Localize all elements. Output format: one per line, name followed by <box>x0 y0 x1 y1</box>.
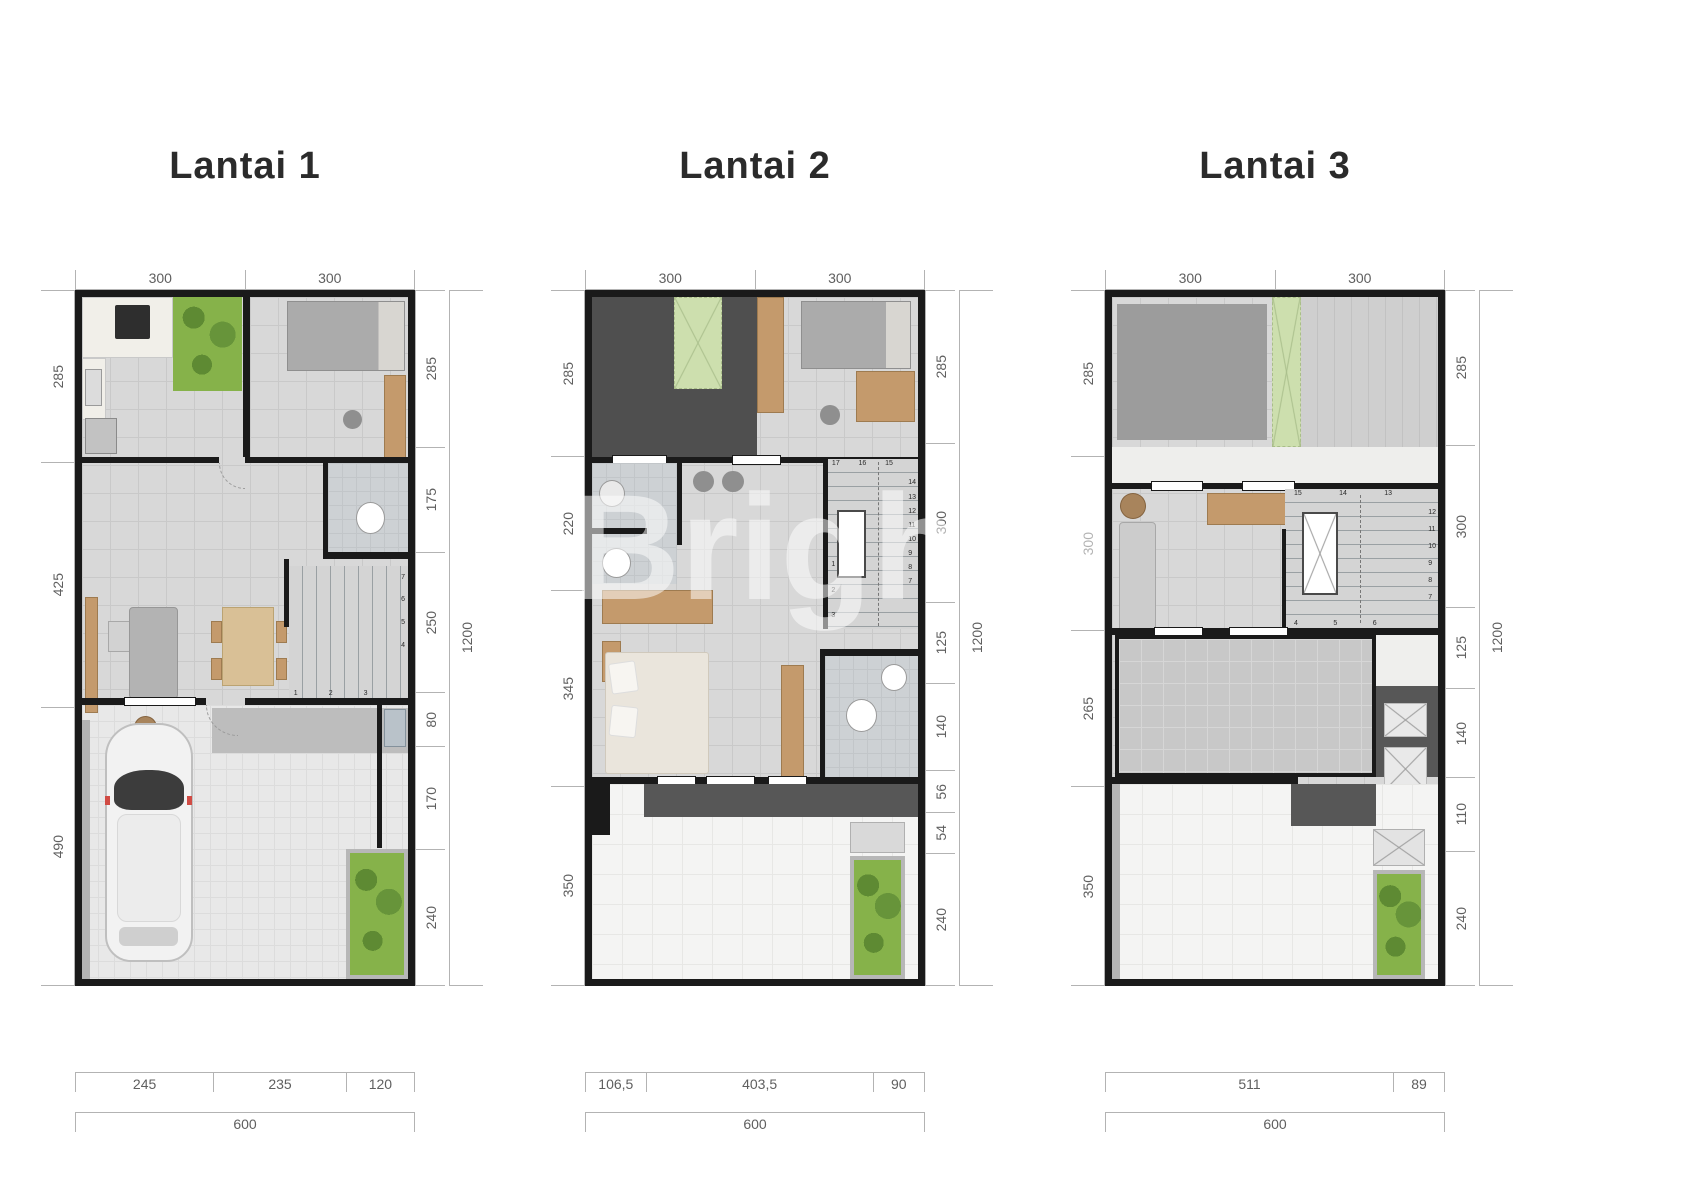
toilet-icon-bathroom2 <box>602 548 631 578</box>
pouf-bedroom2 <box>820 405 840 425</box>
dimension-label: 240 <box>933 908 949 931</box>
dimension-label: 89 <box>1394 1076 1444 1092</box>
stair-step-number: 11 <box>1428 526 1436 533</box>
desk-master-bedroom <box>602 590 713 624</box>
wall-utility-right <box>377 705 382 848</box>
stair-step-number: 4 <box>1294 620 1298 627</box>
stair-step-number: 7 <box>908 578 916 585</box>
garden-patch-back <box>346 849 408 979</box>
roof-slab <box>1117 304 1267 440</box>
stair-step-number: 1 <box>294 690 298 697</box>
dimension-label: 80 <box>423 712 439 728</box>
dining-chair <box>211 621 222 643</box>
stair-step-number: 14 <box>1339 490 1347 497</box>
wood-floor-strip <box>856 371 915 422</box>
stair-numbers: 7654 <box>401 574 405 649</box>
stair-step-number: 13 <box>908 494 916 501</box>
ac-pad <box>1384 703 1426 737</box>
dimension-label: 300 <box>1080 532 1096 555</box>
door-arc-kitchen <box>219 463 245 489</box>
dim-strip-top: 300300 <box>75 268 415 290</box>
stair-step-number: 3 <box>364 690 368 697</box>
stair-numbers: 123 <box>294 690 368 697</box>
car-marker-left <box>105 796 110 805</box>
ledge-strip <box>1112 447 1438 486</box>
stair-step-number: 3 <box>831 612 835 619</box>
stair-step-number: 1 <box>831 561 835 568</box>
dimension-label: 250 <box>423 611 439 634</box>
dimension-label: 1200 <box>459 622 475 653</box>
dimension-label: 300 <box>586 270 755 286</box>
stair-numbers: 151413 <box>1294 490 1392 497</box>
dining-table <box>222 607 274 685</box>
bathroom2-wall-inner <box>592 528 647 535</box>
stair-step-number: 5 <box>1333 620 1337 627</box>
dimension-label: 300 <box>76 270 245 286</box>
wardrobe-bedroom2 <box>757 297 785 413</box>
dimension-label: 170 <box>423 787 439 810</box>
dimension-label: 285 <box>933 355 949 378</box>
pillow <box>609 704 639 738</box>
dimension-label: 300 <box>756 270 925 286</box>
dimension-label: 300 <box>1276 270 1445 286</box>
stair-step-number: 7 <box>1428 594 1436 601</box>
tiled-roof <box>1301 297 1438 447</box>
dimension-label: 240 <box>1453 907 1469 930</box>
dimension-label: 54 <box>933 825 949 841</box>
stair-step-number: 12 <box>908 508 916 515</box>
dim-strip-bottom-total: 600 <box>1105 1112 1445 1136</box>
dim-strip-right-total: 1200 <box>449 290 483 986</box>
dimension-label: 125 <box>933 631 949 654</box>
dimension-label: 600 <box>586 1116 924 1132</box>
dim-strip-right: 2853001251405654240 <box>925 290 955 986</box>
terrace-deck <box>1115 635 1376 777</box>
stove-icon <box>115 305 151 339</box>
stair-step-number: 6 <box>1373 620 1377 627</box>
dimension-label: 285 <box>1453 356 1469 379</box>
round-table-family <box>1120 493 1146 519</box>
dimension-label: 140 <box>933 715 949 738</box>
stair-step-number: 15 <box>1294 490 1302 497</box>
rooftop-wall-stub <box>592 784 610 835</box>
dimension-label: 265 <box>1080 697 1096 720</box>
stair-step-number: 10 <box>908 536 916 543</box>
dim-strip-bottom-total: 600 <box>585 1112 925 1136</box>
coffee-table <box>108 621 131 652</box>
bed-master-bedroom <box>605 652 709 775</box>
garden-patch-rooftop <box>1373 870 1425 979</box>
bed-front-bedroom <box>287 301 404 371</box>
dim-strip-top: 300300 <box>1105 268 1445 290</box>
sink-icon-bathroom3 <box>881 664 907 691</box>
dimension-label: 300 <box>1453 515 1469 538</box>
dimension-label: 345 <box>560 677 576 700</box>
green-strip <box>1272 297 1301 447</box>
floor-title-lantai-3: Lantai 3 <box>1105 145 1445 188</box>
dimension-label: 1200 <box>969 622 985 653</box>
car-windshield <box>114 770 185 810</box>
stairs-floor3: 151413 121110987 456 <box>1285 489 1438 628</box>
window-hall <box>732 455 781 465</box>
wall-kitchen-bottom <box>82 457 219 464</box>
dim-strip-bottom: 51189 <box>1105 1072 1445 1096</box>
floor-title-lantai-1: Lantai 1 <box>75 145 415 188</box>
floor-title-lantai-2: Lantai 2 <box>585 145 925 188</box>
stair-step-number: 7 <box>401 574 405 581</box>
dimension-label: 235 <box>214 1076 346 1092</box>
stair-numbers: 121110987 <box>1428 509 1436 601</box>
pouf-hall <box>693 471 714 492</box>
stair-well <box>1302 512 1339 595</box>
floorplan-panel-lantai-1: Lantai 1 300300 285425490 28517525080170… <box>15 125 507 1155</box>
stair-numbers: 171615 <box>832 460 893 467</box>
wall-master-bottom <box>592 777 918 784</box>
stair-step-number: 9 <box>1428 560 1436 567</box>
dim-strip-bottom: 245235120 <box>75 1072 415 1096</box>
stair-step-number: 8 <box>1428 577 1436 584</box>
dimension-label: 285 <box>50 365 66 388</box>
wardrobe-front-bedroom <box>384 375 406 460</box>
dimension-label: 425 <box>50 573 66 596</box>
bathroom2-wall-right <box>677 463 682 545</box>
dimension-label: 110 <box>1453 803 1469 825</box>
kitchen-sink-icon <box>85 369 102 407</box>
dimension-label: 600 <box>1106 1116 1444 1132</box>
bathroom1-wall-bottom <box>323 552 408 559</box>
stair-numbers: 123 <box>831 561 835 619</box>
dim-strip-left: 285300265350 <box>1071 290 1105 986</box>
dimension-label: 90 <box>874 1076 924 1092</box>
stair-step-number: 14 <box>908 479 916 486</box>
bathroom3-wall-left <box>820 649 825 784</box>
floorplan-panel-lantai-2: Lantai 2 300300 285220345350 28530012514… <box>525 125 1017 1155</box>
dining-chair <box>211 658 222 680</box>
dimension-label: 1200 <box>1489 622 1505 653</box>
wall-stairs-left <box>284 559 289 627</box>
stair-step-number: 2 <box>329 690 333 697</box>
dimension-label: 125 <box>1453 636 1469 659</box>
stairs-floor2: 171615 1413121110987 123 <box>828 459 918 630</box>
stair-step-number: 15 <box>885 460 893 467</box>
dimension-label: 300 <box>933 511 949 534</box>
pouf-front-bedroom <box>343 410 363 430</box>
terrace-white-zone <box>1376 635 1438 693</box>
floorplan-panel-lantai-3: Lantai 3 300300 285300265350 28530012514… <box>1045 125 1537 1155</box>
driveway-curb <box>82 720 90 979</box>
stair-step-number: 6 <box>401 596 405 603</box>
stair-well <box>837 510 866 578</box>
floorplan-canvas-lantai-3: 151413 121110987 456 <box>1105 290 1445 986</box>
sink-icon-bathroom2 <box>599 480 625 507</box>
dimension-label: 285 <box>423 357 439 380</box>
dim-strip-left: 285220345350 <box>551 290 585 986</box>
garden-patch-kitchen <box>173 297 241 391</box>
car-rear-window <box>119 927 178 946</box>
stair-step-number: 4 <box>401 642 405 649</box>
stair-numbers: 1413121110987 <box>908 479 916 585</box>
sideboard-family <box>1207 493 1289 524</box>
wall-rooftop-top <box>1112 777 1298 784</box>
stair-step-number: 5 <box>401 619 405 626</box>
stair-step-number: 12 <box>1428 509 1436 516</box>
dimension-label: 511 <box>1106 1076 1393 1092</box>
rooftop-dark-band <box>1291 784 1376 826</box>
dim-strip-bottom: 106,5403,590 <box>585 1072 925 1096</box>
car-marker-right <box>187 796 192 805</box>
dim-strip-left: 285425490 <box>41 290 75 986</box>
dimension-label: 56 <box>933 784 949 800</box>
wall-bedroom-bottom <box>245 457 408 464</box>
tv-console <box>85 597 98 713</box>
dining-chair <box>276 658 287 680</box>
bed-bedroom2 <box>801 301 912 369</box>
car <box>105 723 193 962</box>
stair-step-number: 13 <box>1384 490 1392 497</box>
stair-numbers: 456 <box>1294 620 1377 627</box>
dim-strip-right-total: 1200 <box>1479 290 1513 986</box>
wall-living-bottom-right <box>245 698 408 705</box>
dim-strip-right: 28517525080170240 <box>415 290 445 986</box>
stair-step-number: 11 <box>908 522 916 529</box>
floorplan-canvas-lantai-2: 171615 1413121110987 123 <box>585 290 925 986</box>
dimension-label: 490 <box>50 835 66 858</box>
dimension-label: 240 <box>423 906 439 929</box>
dimension-label: 106,5 <box>586 1076 646 1092</box>
dimension-label: 350 <box>1080 875 1096 898</box>
car-roof <box>117 814 181 922</box>
rooftop-pad <box>850 822 905 853</box>
dimension-label: 350 <box>560 874 576 897</box>
dimension-label: 220 <box>560 512 576 535</box>
rooftop-dark-band <box>644 784 918 817</box>
dimension-label: 245 <box>76 1076 213 1092</box>
stair-step-number: 9 <box>908 550 916 557</box>
window-living <box>124 697 196 707</box>
sofa-family <box>1119 522 1156 638</box>
sofa-living <box>129 607 178 699</box>
dimension-label: 120 <box>347 1076 414 1092</box>
stair-step-number: 17 <box>832 460 840 467</box>
stair-step-number: 2 <box>831 587 835 594</box>
wall-kitchen-bedroom <box>243 297 250 457</box>
bathroom1-wall-left <box>323 463 328 558</box>
floorplan-canvas-lantai-1: 123 7654 <box>75 290 415 986</box>
dimension-label: 285 <box>560 362 576 385</box>
dimension-label: 140 <box>1453 722 1469 745</box>
dimension-label: 300 <box>246 270 415 286</box>
rooftop-curb <box>1112 784 1120 979</box>
dresser-master <box>781 665 804 788</box>
stair-rail <box>1360 495 1361 623</box>
window-family <box>1151 481 1203 491</box>
void-garden-below <box>674 297 723 389</box>
dimension-label: 285 <box>1080 362 1096 385</box>
bathroom3-wall-top <box>820 649 918 656</box>
pouf-hall <box>722 471 743 492</box>
dim-strip-top: 300300 <box>585 268 925 290</box>
wall-stairs-left <box>1282 529 1287 629</box>
rooftop-pad <box>1373 829 1425 867</box>
dimension-label: 600 <box>76 1116 414 1132</box>
dimension-label: 175 <box>423 488 439 511</box>
wall-stairs-left <box>823 459 828 630</box>
stair-rail <box>878 462 879 626</box>
dim-strip-bottom-total: 600 <box>75 1112 415 1136</box>
page: Lantai 1 300300 285425490 28517525080170… <box>0 0 1699 1177</box>
stair-step-number: 10 <box>1428 543 1436 550</box>
pillow <box>608 661 639 696</box>
stair-step-number: 16 <box>859 460 867 467</box>
stair-step-number: 8 <box>908 564 916 571</box>
garden-patch-rooftop <box>850 856 905 979</box>
dim-strip-right-total: 1200 <box>959 290 993 986</box>
fridge <box>85 418 118 453</box>
dim-strip-right: 285300125140110240 <box>1445 290 1475 986</box>
dimension-label: 403,5 <box>647 1076 873 1092</box>
stairs-floor1: 123 7654 <box>289 566 408 700</box>
dimension-label: 300 <box>1106 270 1275 286</box>
washing-machine <box>384 709 407 747</box>
